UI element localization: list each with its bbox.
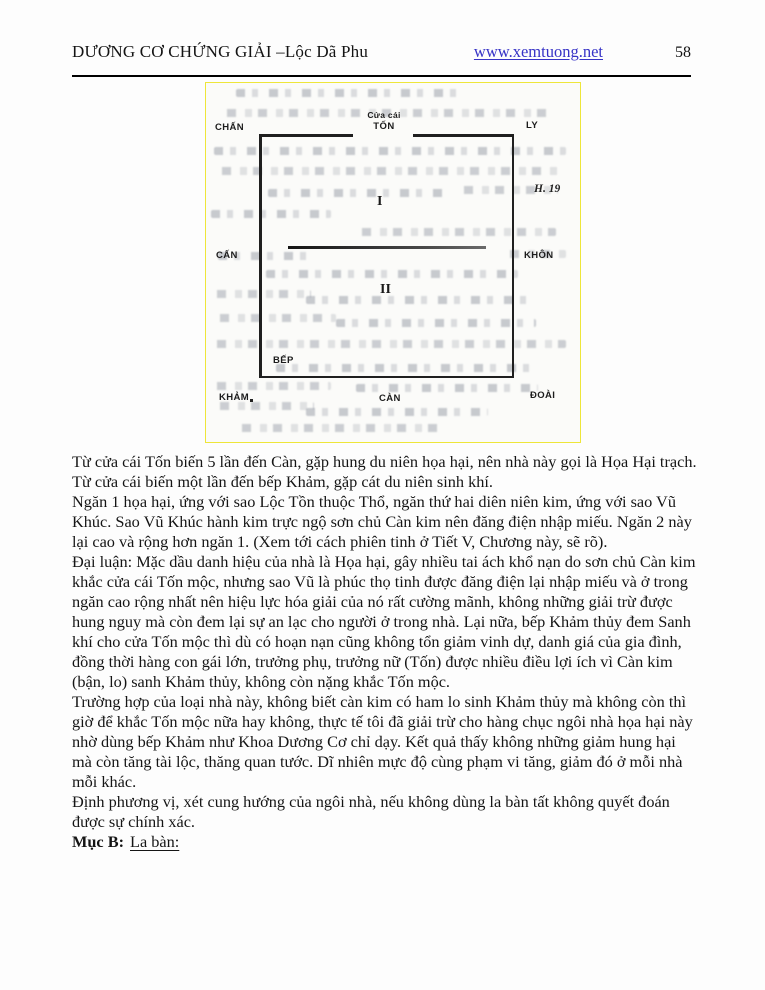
door-caption-text: Cửa cái xyxy=(348,110,420,120)
trigram-can-heaven: CÀN xyxy=(379,393,401,404)
section-heading: Mục B:La bàn: xyxy=(72,832,697,852)
bleedthrough-text-fragment xyxy=(214,402,314,410)
page-header: DƯƠNG CƠ CHỨNG GIẢI –Lộc Dã Phu www.xemt… xyxy=(72,42,691,62)
trigram-ly: LY xyxy=(526,120,538,131)
website-link[interactable]: www.xemtuong.net xyxy=(474,42,603,62)
section-1-marker: I xyxy=(377,194,382,210)
paragraph: Đại luận: Mặc dầu danh hiệu của nhà là H… xyxy=(72,552,697,692)
main-door-caption: Cửa cái TỐN xyxy=(348,110,420,132)
document-page: DƯƠNG CƠ CHỨNG GIẢI –Lộc Dã Phu www.xemt… xyxy=(0,0,765,990)
figure-number: H. 19 xyxy=(534,183,560,195)
house-wall-bottom xyxy=(259,376,514,379)
kitchen-label: BẾP xyxy=(273,355,294,366)
bleedthrough-text-fragment xyxy=(306,408,488,416)
trigram-doai: ĐOÀI xyxy=(530,390,555,401)
paragraph: Trường hợp của loại nhà này, không biết … xyxy=(72,692,697,792)
bleedthrough-text-fragment xyxy=(236,424,441,432)
section-divider-line xyxy=(288,246,486,249)
floorplan-figure: I II BẾP Cửa cái TỐN CHẤN LY H. 19 CẤN K… xyxy=(205,82,581,443)
trigram-can-mountain: CẤN xyxy=(216,250,238,261)
page-number: 58 xyxy=(603,44,691,62)
house-outline: I II BẾP xyxy=(259,134,514,378)
bleedthrough-text-fragment xyxy=(236,89,466,97)
trigram-chan: CHẤN xyxy=(215,122,244,133)
section-2-marker: II xyxy=(380,282,391,298)
bleedthrough-text-fragment xyxy=(356,384,538,392)
trigram-ton: TỐN xyxy=(348,121,420,132)
paragraph: Ngăn 1 họa hại, ứng với sao Lộc Tồn thuộ… xyxy=(72,492,697,552)
trigram-khon: KHÔN xyxy=(524,250,554,261)
house-wall-right xyxy=(512,134,515,378)
body-text: Từ cửa cái Tốn biến 5 lần đến Càn, gặp h… xyxy=(72,452,697,852)
header-rule xyxy=(72,75,691,77)
paragraph: Từ cửa cái Tốn biến 5 lần đến Càn, gặp h… xyxy=(72,452,697,472)
book-title: DƯƠNG CƠ CHỨNG GIẢI –Lộc Dã Phu xyxy=(72,42,474,62)
bleedthrough-text-fragment xyxy=(211,382,331,390)
house-wall-top-left-of-door xyxy=(259,134,353,137)
trigram-kham: KHẢM xyxy=(219,392,253,403)
paragraph: Từ cửa cái biến một lần đến bếp Khảm, gặ… xyxy=(72,472,697,492)
paragraph: Định phương vị, xét cung hướng của ngôi … xyxy=(72,792,697,832)
section-title-underlined: La bàn: xyxy=(130,832,179,851)
house-wall-left xyxy=(259,134,262,378)
house-wall-top-right-of-door xyxy=(413,134,514,137)
section-label: Mục B: xyxy=(72,832,124,851)
